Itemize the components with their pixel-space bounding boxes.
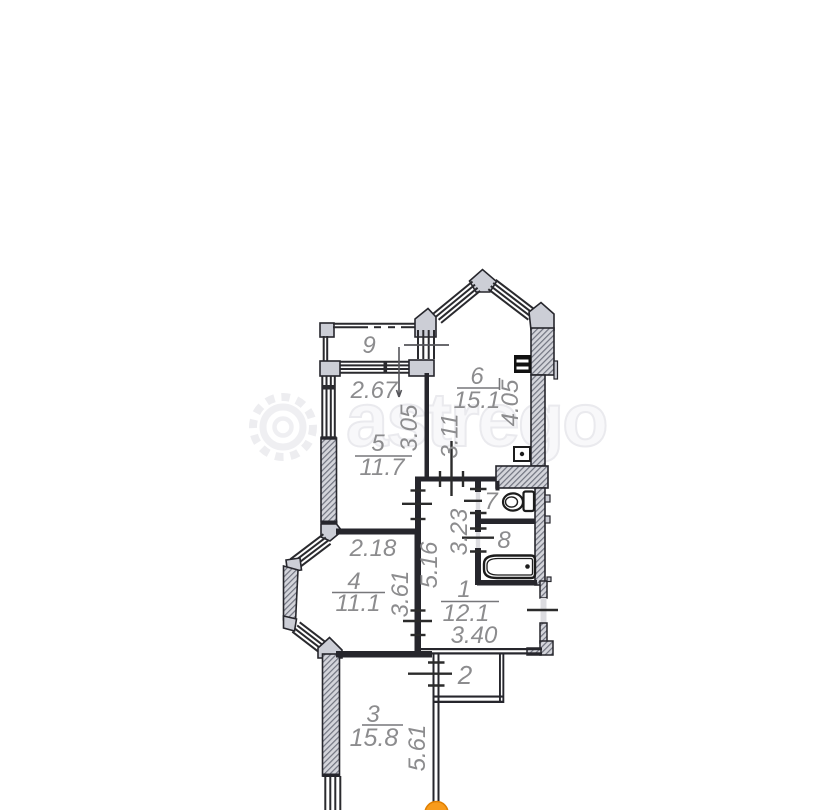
svg-text:2: 2 (457, 660, 473, 690)
svg-text:5.61: 5.61 (404, 725, 431, 772)
svg-text:9: 9 (362, 332, 375, 359)
svg-text:11.1: 11.1 (336, 590, 381, 617)
svg-text:4.05: 4.05 (497, 379, 524, 426)
svg-text:1: 1 (457, 576, 470, 603)
svg-text:3.61: 3.61 (387, 571, 414, 618)
svg-text:5: 5 (371, 430, 385, 457)
svg-text:7: 7 (484, 488, 499, 515)
svg-text:2.67: 2.67 (350, 377, 399, 404)
svg-text:15.8: 15.8 (350, 724, 399, 752)
svg-text:3.11: 3.11 (437, 414, 464, 459)
svg-text:15.1: 15.1 (454, 387, 501, 414)
svg-text:3.40: 3.40 (451, 622, 498, 649)
svg-text:6: 6 (470, 363, 484, 390)
svg-text:3.05: 3.05 (396, 404, 423, 451)
svg-text:2.18: 2.18 (349, 535, 397, 562)
svg-text:5.16: 5.16 (416, 541, 443, 588)
svg-text:11.7: 11.7 (360, 454, 407, 481)
svg-text:3.23: 3.23 (446, 508, 473, 555)
svg-text:8: 8 (497, 527, 511, 554)
